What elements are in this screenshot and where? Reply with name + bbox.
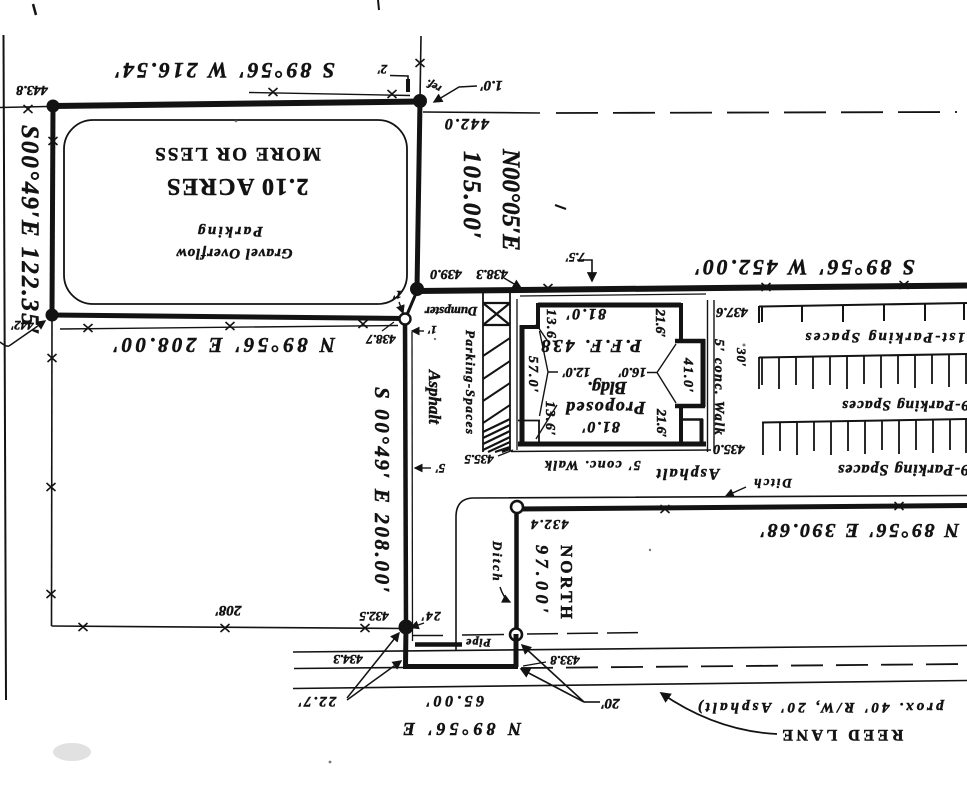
svg-text:5′: 5′ <box>435 461 446 476</box>
svg-text:435.0: 435.0 <box>713 441 746 456</box>
svg-text:438.7: 438.7 <box>366 332 397 347</box>
svg-text:1′: 1′ <box>392 288 401 302</box>
svg-text:Ditch: Ditch <box>490 540 505 583</box>
svg-text:N 89°56′ E 390.68′: N 89°56′ E 390.68′ <box>757 519 960 541</box>
svg-text:5′ conc. Walk: 5′ conc. Walk <box>543 457 640 472</box>
svg-text:13.6′: 13.6′ <box>543 309 558 345</box>
svg-text:20′: 20′ <box>600 695 620 711</box>
svg-text:12.0′: 12.0′ <box>562 364 591 379</box>
svg-text:1′: 1′ <box>427 323 436 337</box>
svg-text:22.7′: 22.7′ <box>296 693 337 709</box>
svg-text:9-Parking Spaces: 9-Parking Spaces <box>837 461 967 478</box>
svg-text:1st-Parking Spaces: 1st-Parking Spaces <box>803 329 965 345</box>
svg-text:432.4: 432.4 <box>530 516 570 531</box>
svg-text:438.3: 438.3 <box>476 266 509 281</box>
svg-text:Dumpster: Dumpster <box>424 304 479 319</box>
svg-text:7.5′: 7.5′ <box>565 250 585 265</box>
svg-text:N00°05′E: N00°05′E <box>497 148 524 251</box>
svg-text:81.0′: 81.0′ <box>580 418 620 435</box>
svg-text:16.0′: 16.0′ <box>618 364 647 379</box>
svg-text:13.6′: 13.6′ <box>542 401 557 437</box>
svg-text:2′: 2′ <box>377 62 389 77</box>
svg-text:MORE OR LESS: MORE OR LESS <box>153 143 321 164</box>
svg-text:ref.: ref. <box>424 77 443 95</box>
svg-text:435.5: 435.5 <box>464 452 495 467</box>
svg-text:Proposed: Proposed <box>565 398 647 418</box>
svg-text:439.0: 439.0 <box>430 266 463 281</box>
svg-text:NORTH: NORTH <box>557 545 576 622</box>
svg-text:S00°49′E 122.35′: S00°49′E 122.35′ <box>16 125 43 337</box>
svg-text:9-Parking Spaces: 9-Parking Spaces <box>841 397 967 413</box>
svg-text:Pipe: Pipe <box>465 636 491 650</box>
svg-text:24′: 24′ <box>419 609 441 624</box>
svg-text:30′: 30′ <box>734 347 749 368</box>
svg-text:prox. 40′ R/W, 20′ Asphalt): prox. 40′ R/W, 20′ Asphalt) <box>695 699 946 715</box>
svg-text:N 89°56′ E 208.00′: N 89°56′ E 208.00′ <box>109 333 336 357</box>
svg-text:Asphalt: Asphalt <box>425 369 444 425</box>
svg-text:432.5: 432.5 <box>359 609 390 624</box>
svg-text:105.00′: 105.00′ <box>458 151 485 241</box>
svg-text:97.00′: 97.00′ <box>532 545 552 618</box>
svg-text:21.6′: 21.6′ <box>653 408 668 438</box>
svg-text:S 00°49′ E 208.00′: S 00°49′ E 208.00′ <box>370 387 394 595</box>
svg-text:Parking: Parking <box>195 223 263 239</box>
svg-text:437.6: 437.6 <box>716 304 749 319</box>
svg-text:21.6′: 21.6′ <box>652 308 667 338</box>
svg-text:57.0′: 57.0′ <box>525 356 540 394</box>
svg-text:S 89°56′ W 452.00′: S 89°56′ W 452.00′ <box>691 255 915 280</box>
svg-text:442.0: 442.0 <box>443 115 490 132</box>
svg-text:443.8: 443.8 <box>16 82 49 97</box>
svg-text:Asphalt: Asphalt <box>655 465 721 482</box>
svg-text:433.8: 433.8 <box>550 653 581 668</box>
svg-text:REED LANE: REED LANE <box>779 726 903 743</box>
svg-text:Bldg.: Bldg. <box>587 378 628 398</box>
svg-text:Ditch: Ditch <box>752 476 793 491</box>
svg-text:41.0′: 41.0′ <box>680 357 695 394</box>
svg-text:S 89°56′ W 216.54′: S 89°56′ W 216.54′ <box>111 58 335 83</box>
svg-text:2.10 ACRES: 2.10 ACRES <box>165 173 308 199</box>
svg-text:Gravel Overflow: Gravel Overflow <box>175 245 292 261</box>
svg-text:65.00′: 65.00′ <box>422 692 484 709</box>
svg-text:Parking-Spaces: Parking-Spaces <box>463 330 478 436</box>
svg-text:81.0′: 81.0′ <box>564 305 607 322</box>
svg-text:5′ conc. Walk: 5′ conc. Walk <box>711 339 726 436</box>
svg-text:208′: 208′ <box>215 602 243 618</box>
svg-text:1.0′: 1.0′ <box>480 77 503 93</box>
svg-text:434.3: 434.3 <box>333 652 364 667</box>
svg-text:N 89°56′ E: N 89°56′ E <box>399 719 522 739</box>
